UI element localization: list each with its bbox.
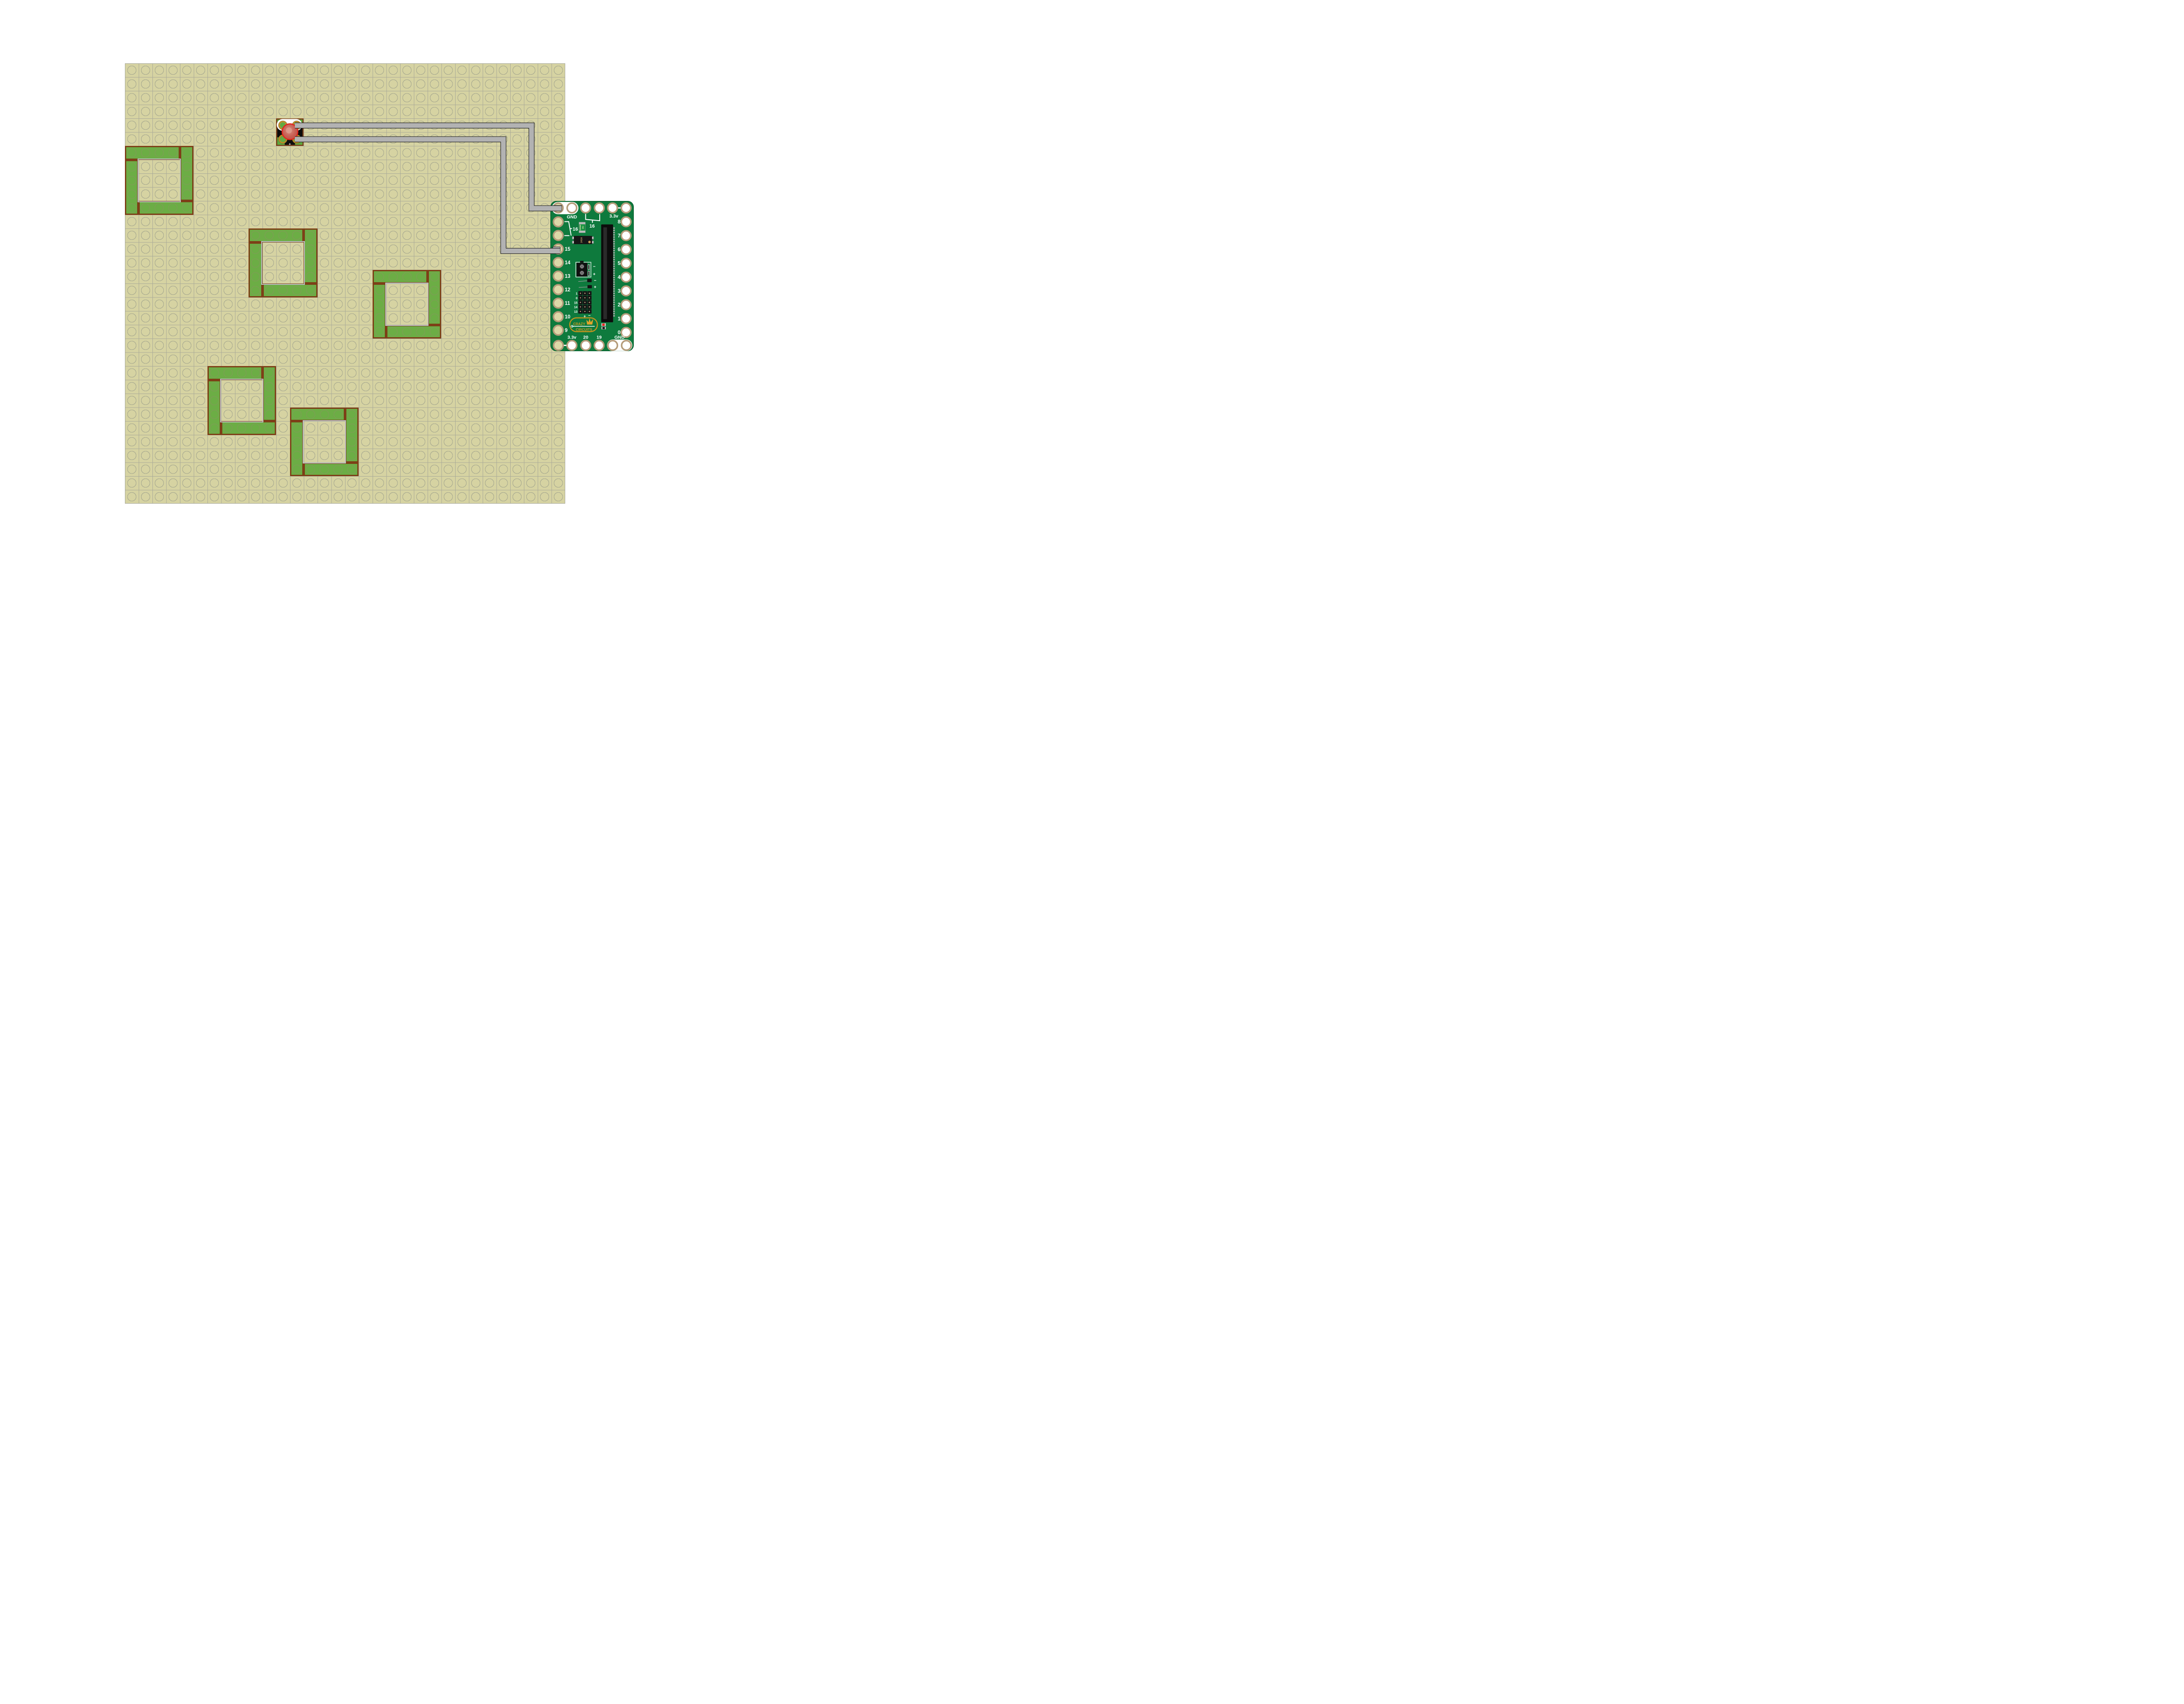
square-opening xyxy=(261,241,305,285)
pin-label: 3 xyxy=(618,289,620,294)
pin-hole xyxy=(567,203,577,213)
green-brick xyxy=(138,201,194,215)
led-red xyxy=(601,323,605,326)
pin-hole xyxy=(621,217,631,227)
header-row-label: 0 xyxy=(576,297,577,300)
tape-endpoint-gnd xyxy=(553,206,562,211)
probe-plus-label: + xyxy=(594,285,596,290)
green-brick xyxy=(207,380,221,435)
logo-line-2: CIRCUITS xyxy=(576,328,592,332)
pin-hole xyxy=(594,341,604,350)
square-opening xyxy=(385,283,429,326)
pin-hole xyxy=(567,341,577,350)
pin-hole xyxy=(553,217,563,227)
pin-hole xyxy=(621,273,631,282)
green-brick xyxy=(207,366,263,380)
probe-minus-label: − xyxy=(594,279,596,283)
pin-hole xyxy=(621,203,631,213)
pin-hole xyxy=(553,325,563,335)
green-brick-square[interactable] xyxy=(207,366,276,435)
pin-hole xyxy=(553,231,563,240)
pin-hole xyxy=(621,286,631,296)
pin-hole xyxy=(608,341,617,350)
pin-label: 13 xyxy=(565,274,570,279)
pin-hole xyxy=(553,298,563,308)
green-brick-square[interactable] xyxy=(290,408,359,477)
pin-label: 1 xyxy=(618,317,621,322)
pin-hole xyxy=(553,258,563,267)
pin-label: 10 xyxy=(565,315,570,320)
bit-board-pcb[interactable]: X200F 16v 241A − xyxy=(550,201,634,351)
pin-hole xyxy=(553,312,563,321)
green-brick xyxy=(373,283,387,339)
square-opening xyxy=(220,379,264,422)
pin-hole xyxy=(621,300,631,310)
green-brick-square[interactable] xyxy=(249,228,318,297)
green-brick xyxy=(290,408,345,422)
green-brick xyxy=(304,228,318,283)
green-brick xyxy=(373,270,428,284)
pin-hole xyxy=(553,285,563,294)
pin-label: 6 xyxy=(618,247,620,252)
pushbutton-module[interactable]: + xyxy=(276,118,304,146)
pin-hole xyxy=(621,259,631,268)
green-brick xyxy=(125,160,139,215)
bracket-16-left-label: 16 xyxy=(573,227,578,232)
pin-label: 11 xyxy=(565,301,570,306)
green-brick xyxy=(249,228,304,242)
square-opening xyxy=(303,420,346,464)
pin-hole xyxy=(621,314,631,324)
pin-hole xyxy=(594,203,604,213)
header-row-label: 1 xyxy=(576,293,577,296)
header-row-label: 14 xyxy=(574,306,577,309)
pin-label: 9 xyxy=(565,328,567,333)
pin-20-label: 20 xyxy=(583,335,588,340)
pin-label: 4 xyxy=(618,275,621,280)
pin-19-label: 19 xyxy=(596,335,601,340)
module-plus-label: + xyxy=(289,142,291,146)
tape-endpoint-15 xyxy=(553,247,560,251)
pin-hole xyxy=(621,245,631,254)
led-black xyxy=(601,327,606,329)
pin-hole xyxy=(608,203,617,213)
pin-hole xyxy=(553,271,563,281)
bracket-16-top-label: 16 xyxy=(589,224,594,229)
green-brick xyxy=(345,408,359,463)
v33-label-bottom: 3.3v xyxy=(567,335,577,340)
green-brick xyxy=(290,421,304,476)
square-opening xyxy=(138,159,181,202)
green-brick xyxy=(221,421,276,435)
pin-label: 7 xyxy=(618,234,620,239)
pin-label: 15 xyxy=(565,247,570,252)
pin-label: 14 xyxy=(565,260,570,266)
pin-hole xyxy=(553,341,563,350)
gnd-label-bottom: GND xyxy=(614,335,625,340)
fuse-label-2: 16v xyxy=(581,226,584,229)
pin-hole xyxy=(581,203,590,213)
pushbutton-highlight xyxy=(286,127,292,133)
v33-link-bottom xyxy=(563,345,566,346)
green-brick xyxy=(263,366,276,421)
green-brick xyxy=(263,283,318,297)
terminal-plus-label: + xyxy=(593,272,595,277)
terminal-minus-label: − xyxy=(593,265,595,270)
header-row-label: 15 xyxy=(574,302,577,305)
pin-hole xyxy=(581,341,591,350)
edge-connector xyxy=(601,225,613,322)
pin-hole xyxy=(622,341,631,350)
green-brick xyxy=(386,325,441,339)
green-brick-square[interactable] xyxy=(125,146,194,215)
green-brick xyxy=(180,146,194,201)
green-brick-square[interactable] xyxy=(373,270,442,339)
green-brick xyxy=(125,146,180,160)
v33-label-top: 3.3v xyxy=(609,214,619,219)
fuse-label-1: X200F xyxy=(579,225,581,231)
v33-link-top xyxy=(618,207,620,209)
ic-component: 241A xyxy=(572,236,594,244)
gnd-label-top: GND xyxy=(567,214,577,220)
circuit-diagram-canvas: + X200F 16v xyxy=(0,0,757,568)
logo-line-1: CRAZY xyxy=(573,322,585,326)
header-row-label: 13 xyxy=(574,311,577,314)
pushbutton-module-art: + xyxy=(276,118,304,146)
pin-label: 8 xyxy=(618,220,621,225)
fuse-component: X200F 16v xyxy=(579,222,585,233)
green-brick xyxy=(428,270,442,325)
pin-hole xyxy=(621,231,631,241)
green-brick xyxy=(304,463,359,477)
green-brick xyxy=(249,242,263,297)
ic-label: 241A xyxy=(581,237,583,243)
pin-label: 2 xyxy=(618,303,620,308)
pin-label: 5 xyxy=(618,261,621,266)
pin-label: 12 xyxy=(565,287,570,293)
